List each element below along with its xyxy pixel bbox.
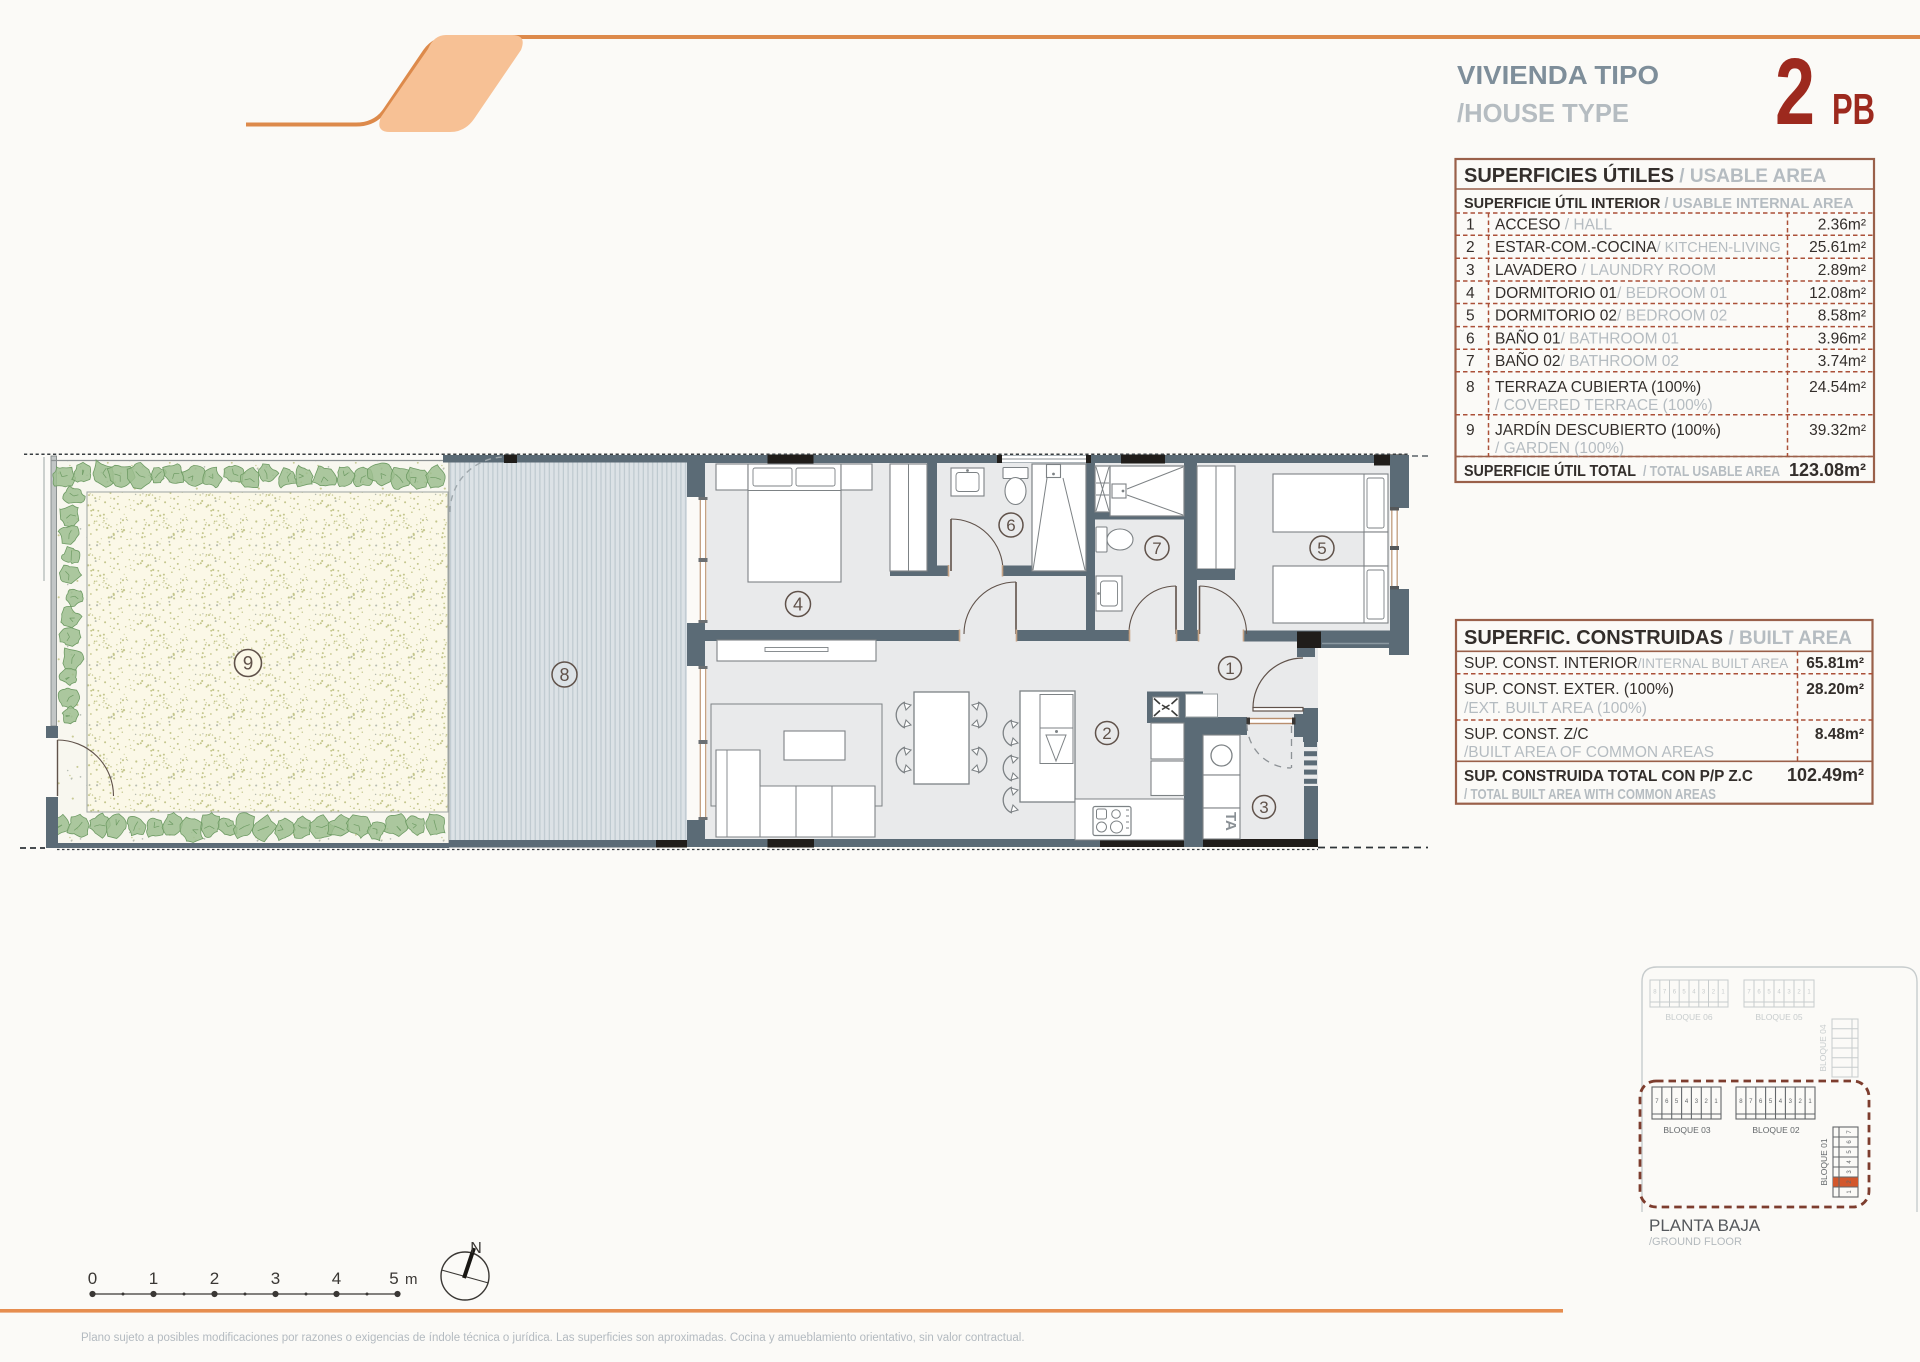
svg-text:ACCESO / HALL: ACCESO / HALL xyxy=(1495,217,1613,234)
svg-text:/ COVERED TERRACE (100%): / COVERED TERRACE (100%) xyxy=(1495,397,1713,414)
svg-text:/ TOTAL BUILT AREA WITH COMMON: / TOTAL BUILT AREA WITH COMMON AREAS xyxy=(1464,786,1716,803)
svg-text:BLOQUE 06: BLOQUE 06 xyxy=(1665,1012,1713,1022)
svg-text:6: 6 xyxy=(1466,331,1475,348)
svg-text:3: 3 xyxy=(271,1269,280,1288)
svg-text:BLOQUE 05: BLOQUE 05 xyxy=(1755,1012,1803,1022)
svg-text:DORMITORIO 01/ BEDROOM 01: DORMITORIO 01/ BEDROOM 01 xyxy=(1495,285,1727,302)
svg-text:1: 1 xyxy=(149,1269,158,1288)
svg-text:6: 6 xyxy=(1006,516,1015,535)
svg-text:2.36m²: 2.36m² xyxy=(1818,217,1866,234)
svg-text:8: 8 xyxy=(559,665,569,685)
svg-text:SUP. CONSTRUIDA TOTAL CON P/P: SUP. CONSTRUIDA TOTAL CON P/P Z.C xyxy=(1464,768,1753,785)
svg-text:8.48m²: 8.48m² xyxy=(1815,726,1864,743)
svg-text:65.81m²: 65.81m² xyxy=(1806,655,1864,672)
svg-text:1: 1 xyxy=(1466,217,1475,234)
svg-text:4: 4 xyxy=(1466,285,1475,302)
svg-text:28.20m²: 28.20m² xyxy=(1806,681,1864,698)
svg-text:SUPERFICIES ÚTILES / USABLE AR: SUPERFICIES ÚTILES / USABLE AREA xyxy=(1464,163,1827,187)
svg-text:4: 4 xyxy=(793,595,803,615)
svg-text:LAVADERO / LAUNDRY ROOM: LAVADERO / LAUNDRY ROOM xyxy=(1495,262,1716,279)
svg-text:BLOQUE 01: BLOQUE 01 xyxy=(1819,1138,1829,1186)
svg-text:4: 4 xyxy=(332,1269,341,1288)
svg-text:25.61m²: 25.61m² xyxy=(1809,239,1866,256)
svg-text:2: 2 xyxy=(1466,239,1475,256)
svg-text:7: 7 xyxy=(1152,539,1161,558)
svg-text:0: 0 xyxy=(88,1269,97,1288)
svg-text:2: 2 xyxy=(1102,724,1111,743)
svg-text:5: 5 xyxy=(1317,539,1326,558)
svg-text:BAÑO 02/ BATHROOM 02: BAÑO 02/ BATHROOM 02 xyxy=(1495,353,1679,370)
svg-text:PLANTA BAJA: PLANTA BAJA xyxy=(1649,1216,1761,1235)
svg-text:SUP. CONST. INTERIOR/INTERNAL: SUP. CONST. INTERIOR/INTERNAL BUILT AREA xyxy=(1464,655,1788,672)
svg-text:123.08m²: 123.08m² xyxy=(1789,460,1866,480)
svg-text:1: 1 xyxy=(1225,659,1234,678)
svg-text:m: m xyxy=(405,1271,418,1288)
svg-text:3.96m²: 3.96m² xyxy=(1818,331,1866,348)
svg-text:SUPERFICIE ÚTIL TOTAL: SUPERFICIE ÚTIL TOTAL xyxy=(1464,462,1636,480)
svg-text:ESTAR-COM.-COCINA/ KITCHEN-LIV: ESTAR-COM.-COCINA/ KITCHEN-LIVING xyxy=(1495,239,1781,256)
svg-text:9: 9 xyxy=(243,654,254,675)
svg-text:2.89m²: 2.89m² xyxy=(1818,262,1866,279)
svg-text:3.74m²: 3.74m² xyxy=(1818,353,1866,370)
svg-text:VIVIENDA TIPO: VIVIENDA TIPO xyxy=(1457,60,1659,90)
svg-text:/EXT. BUILT AREA (100%): /EXT. BUILT AREA (100%) xyxy=(1464,700,1647,717)
svg-text:24.54m²: 24.54m² xyxy=(1809,379,1866,396)
svg-text:N: N xyxy=(470,1240,482,1257)
svg-text:TA: TA xyxy=(1222,812,1239,831)
svg-text:BAÑO 01/ BATHROOM 01: BAÑO 01/ BATHROOM 01 xyxy=(1495,331,1679,348)
svg-text:9: 9 xyxy=(1466,422,1475,439)
svg-text:JARDÍN DESCUBIERTO (100%): JARDÍN DESCUBIERTO (100%) xyxy=(1495,422,1721,439)
svg-text:SUP. CONST. EXTER. (100%): SUP. CONST. EXTER. (100%) xyxy=(1464,681,1674,698)
svg-text:39.32m²: 39.32m² xyxy=(1809,422,1866,439)
svg-text:/GROUND FLOOR: /GROUND FLOOR xyxy=(1649,1236,1742,1248)
svg-text:SUPERFIC. CONSTRUIDAS / BUILT: SUPERFIC. CONSTRUIDAS / BUILT AREA xyxy=(1464,627,1852,649)
svg-text:2: 2 xyxy=(210,1269,219,1288)
svg-text:SUPERFICIE ÚTIL INTERIOR / USA: SUPERFICIE ÚTIL INTERIOR / USABLE INTERN… xyxy=(1464,194,1854,212)
svg-text:12.08m²: 12.08m² xyxy=(1809,285,1866,302)
svg-text:5: 5 xyxy=(1466,308,1475,325)
svg-text:3: 3 xyxy=(1259,798,1268,817)
svg-text:PB: PB xyxy=(1832,85,1875,134)
svg-text:/BUILT AREA OF COMMON AREAS: /BUILT AREA OF COMMON AREAS xyxy=(1464,744,1714,761)
svg-text:DORMITORIO 02/ BEDROOM 02: DORMITORIO 02/ BEDROOM 02 xyxy=(1495,308,1727,325)
svg-text:BLOQUE 02: BLOQUE 02 xyxy=(1752,1125,1800,1135)
svg-text:/ TOTAL USABLE AREA: / TOTAL USABLE AREA xyxy=(1643,464,1780,480)
svg-text:8: 8 xyxy=(1466,379,1475,396)
svg-text:BLOQUE 03: BLOQUE 03 xyxy=(1663,1125,1711,1135)
svg-text:TERRAZA CUBIERTA (100%): TERRAZA CUBIERTA (100%) xyxy=(1495,379,1701,396)
svg-text:2: 2 xyxy=(1775,39,1815,145)
svg-text:/HOUSE TYPE: /HOUSE TYPE xyxy=(1457,98,1629,128)
svg-text:/ GARDEN (100%): / GARDEN (100%) xyxy=(1495,440,1624,457)
svg-text:Plano sujeto a posibles modifi: Plano sujeto a posibles modificaciones p… xyxy=(81,1332,1025,1344)
svg-text:7: 7 xyxy=(1466,353,1475,370)
svg-text:8.58m²: 8.58m² xyxy=(1818,308,1866,325)
svg-text:5: 5 xyxy=(389,1269,398,1288)
svg-text:BLOQUE 04: BLOQUE 04 xyxy=(1818,1024,1828,1072)
svg-text:3: 3 xyxy=(1466,262,1475,279)
svg-text:SUP. CONST. Z/C: SUP. CONST. Z/C xyxy=(1464,726,1589,743)
svg-text:102.49m²: 102.49m² xyxy=(1787,765,1864,785)
